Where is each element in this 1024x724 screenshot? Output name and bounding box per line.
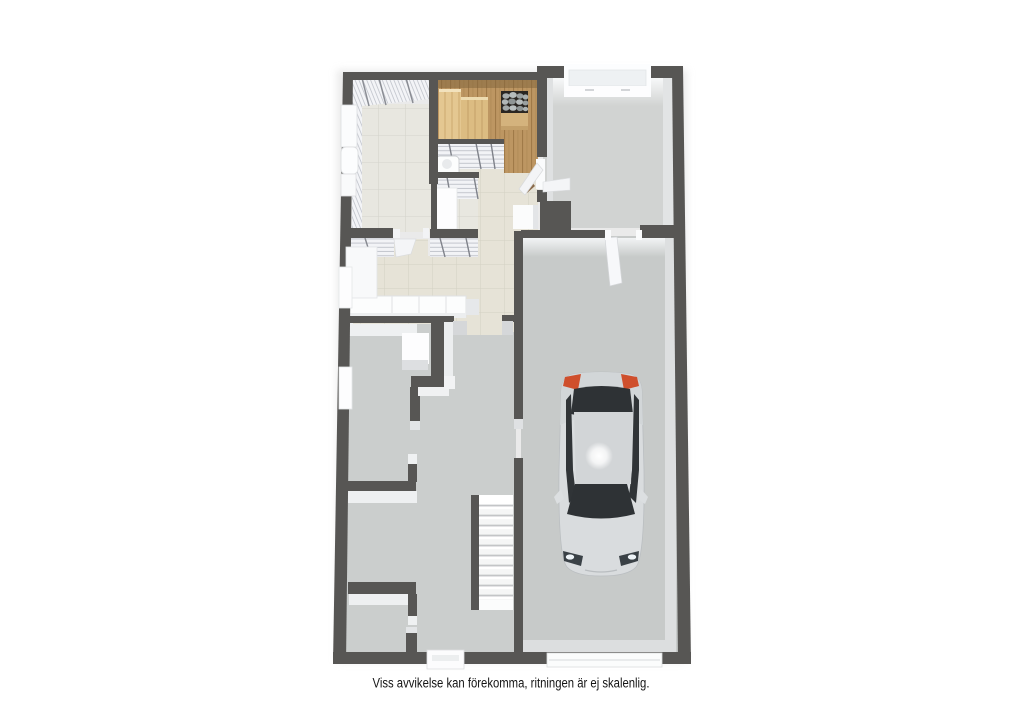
svg-text:Viss avvikelse kan förekomma,: Viss avvikelse kan förekomma, ritningen … xyxy=(373,676,650,692)
